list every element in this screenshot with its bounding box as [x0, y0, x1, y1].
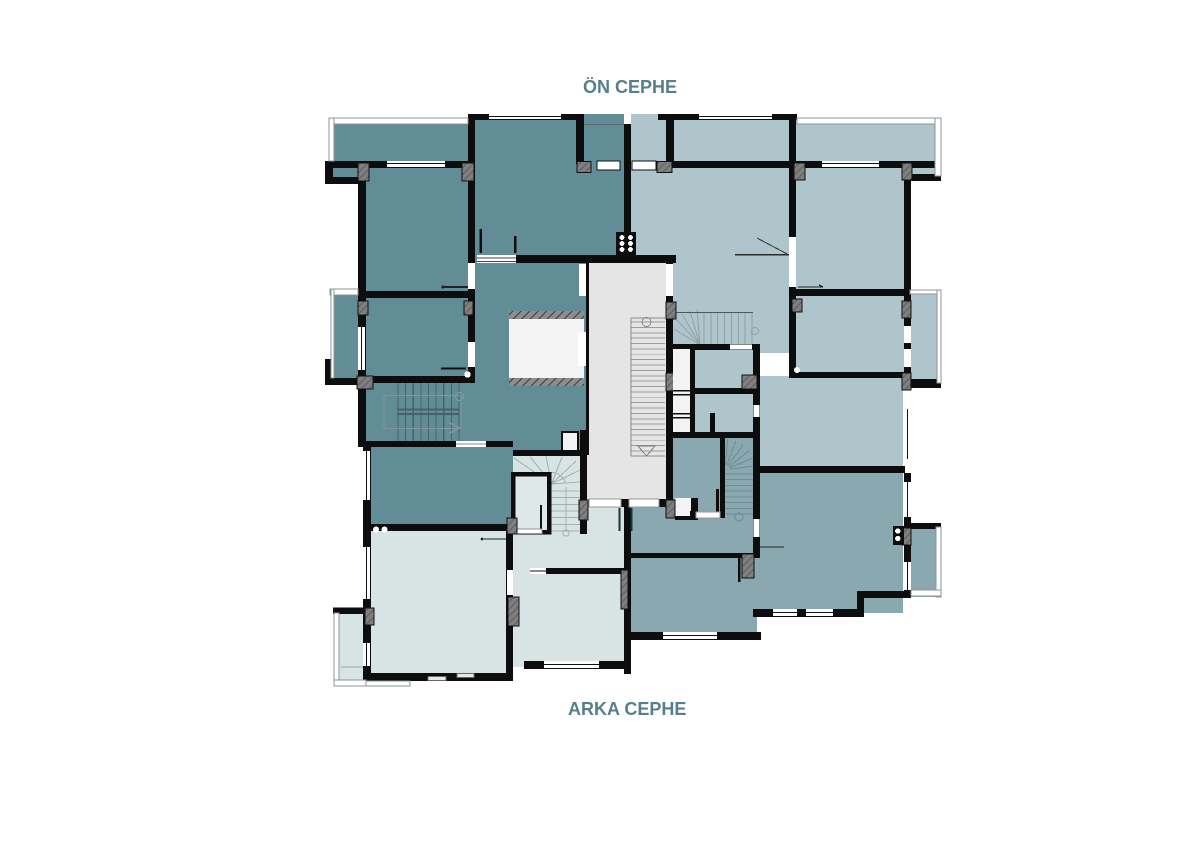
- svg-text:ARKA CEPHE: ARKA CEPHE: [568, 699, 686, 719]
- svg-text:ÖN CEPHE: ÖN CEPHE: [583, 77, 677, 97]
